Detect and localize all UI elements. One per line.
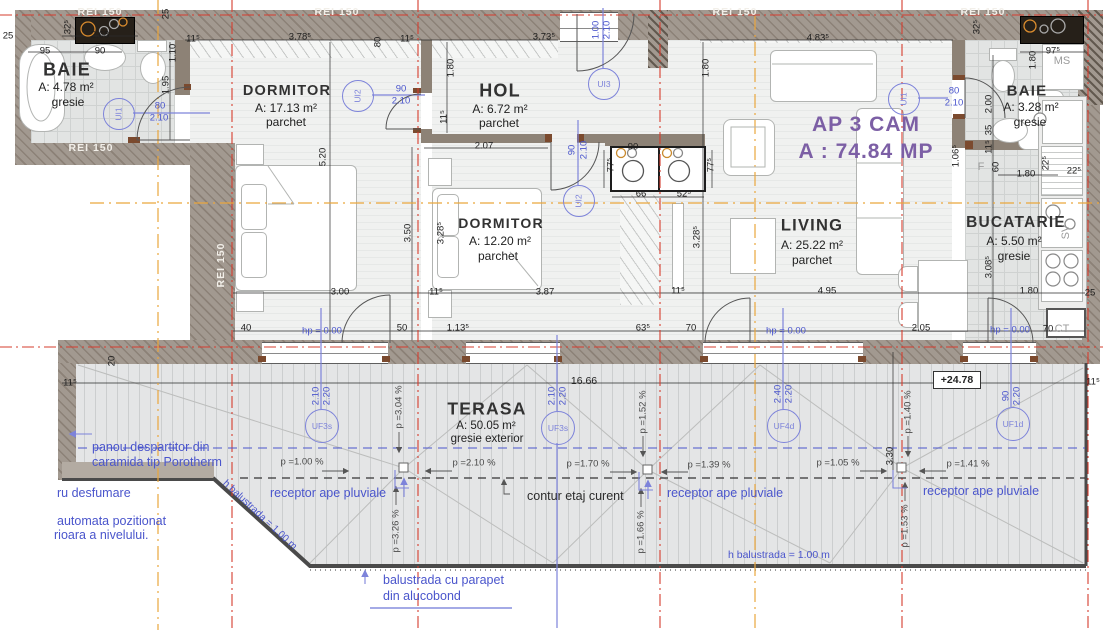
dim-label: 1.00: [591, 21, 602, 40]
annotation-panou-1: panou despartitor din: [92, 440, 209, 454]
door-sill: [953, 114, 965, 119]
annotation-desfumare-1: ru desfumare: [57, 486, 131, 500]
room-floor: gresie: [52, 95, 85, 109]
fire-rating-label: REI 150: [315, 6, 360, 18]
dim-label: 2.10: [602, 21, 613, 40]
dim-label: 3.30: [885, 447, 896, 466]
dim-label: 11⁵: [439, 110, 450, 124]
dim-label: 1.95: [161, 76, 172, 95]
sliding-panel: [672, 203, 684, 289]
dim-label: 1.13⁵: [447, 323, 469, 334]
dim-label: 2.20: [1012, 387, 1023, 406]
room-floor: gresie: [998, 249, 1031, 263]
dim-label: 63⁵: [636, 323, 651, 334]
sofa-top: [770, 50, 877, 102]
terrace-opening-kitchen: [963, 342, 1036, 364]
dim-label: 3.28⁵: [436, 222, 447, 244]
dim-label: 2.10: [547, 387, 558, 406]
wall-top: [15, 10, 1100, 40]
room-area: A: 4.78 m²: [38, 80, 93, 94]
slope-label: p =1.53 %: [900, 504, 911, 547]
door-tag: UI2: [563, 185, 595, 217]
dim-label: 90: [95, 46, 106, 57]
dim-label: 77⁵: [606, 158, 617, 173]
door-sill: [965, 141, 973, 149]
door-sill: [413, 88, 421, 93]
annotation-receptor: receptor ape pluviale: [270, 486, 386, 500]
vanity-counter: [1020, 16, 1084, 44]
stove: [1041, 250, 1083, 302]
room-name: DORMITOR: [458, 215, 544, 231]
dim-label: 95: [40, 46, 51, 57]
wall-shaft-top: [605, 134, 705, 146]
dim-label: 11⁵: [63, 378, 77, 389]
dim-label: 20: [107, 356, 118, 367]
dim-label: 3.78⁵: [289, 32, 311, 43]
slope-label: p =2.10 %: [452, 458, 495, 469]
elevation-badge: +24.78: [933, 371, 981, 389]
nightstand: [236, 144, 264, 165]
dim-label: 3.87: [536, 287, 555, 298]
wall-bath2-left-b: [952, 118, 965, 148]
annotation-panou-2: caramida tip Porotherm: [92, 455, 222, 469]
armchair: [723, 119, 775, 176]
wall-bath2-left-a: [952, 40, 965, 80]
slope-label: p =3.04 %: [394, 385, 405, 428]
dim-label: 11⁵: [429, 287, 443, 298]
window-tag: UF4d: [767, 409, 801, 443]
dim-label: 2.20: [322, 387, 333, 406]
room-name: BAIE: [1007, 83, 1048, 100]
dim-label: 2.10: [150, 113, 169, 124]
terrace-opening-bedroom1: [262, 342, 388, 364]
dim-label: 32⁵: [972, 20, 983, 35]
door-sill: [128, 137, 140, 143]
dining-table: [918, 260, 968, 332]
dim-label: 1.80: [446, 59, 457, 78]
slope-label: p =1.39 %: [687, 460, 730, 471]
window-sill: [382, 356, 390, 362]
wall-void-right: [190, 143, 235, 345]
dim-label: 1.80: [1017, 169, 1036, 180]
dim-label: 2.68: [91, 30, 110, 41]
dim-label: 80: [373, 37, 384, 48]
floor-plan: REI 150 REI 150 REI 150 REI 150 REI 150 …: [0, 0, 1103, 630]
dim-label: 50: [397, 323, 408, 334]
wall-bottom: [58, 340, 1090, 364]
room-floor: parchet: [792, 253, 832, 267]
dim-label: 4.83⁵: [807, 33, 829, 44]
room-floor: gresie exterior: [451, 433, 524, 445]
dim-label: 70: [686, 323, 697, 334]
dim-label: 3.28⁵: [692, 226, 703, 248]
dim-label: 2.00: [984, 95, 995, 114]
annotation-desfumare-3: rioara a nivelului.: [54, 528, 149, 542]
window-sill: [1030, 356, 1038, 362]
dim-label: 25: [1085, 288, 1096, 299]
dim-label: 35: [984, 125, 995, 136]
room-area: A: 17.13 m²: [255, 101, 317, 115]
window-sill: [462, 356, 470, 362]
door-sill: [545, 134, 552, 142]
dim-label: 22⁵: [1041, 156, 1052, 171]
room-area: A: 25.22 m²: [781, 238, 843, 252]
dim-label: 32⁵: [63, 20, 74, 35]
door-tag: UI3: [588, 68, 620, 100]
window-sill: [700, 356, 708, 362]
annotation-balustrada-2: din alucobond: [383, 589, 461, 603]
dim-label: 2.10: [579, 141, 590, 160]
dim-label: 16.66: [571, 375, 597, 387]
room-area: A: 3.28 m²: [1003, 100, 1058, 114]
shaft-strip: [620, 195, 660, 305]
pillar-hatch: [648, 10, 668, 68]
room-name: HOL: [479, 81, 521, 102]
terrace-opening-living: [703, 342, 863, 364]
slope-label: p =1.52 %: [638, 390, 649, 433]
room-floor: gresie: [1014, 115, 1047, 129]
room-name: LIVING: [781, 217, 843, 236]
dim-label: 2.20: [558, 387, 569, 406]
dim-label: 2.10: [311, 387, 322, 406]
dim-label: 40: [241, 323, 252, 334]
equip-label-sv: SV: [1060, 225, 1072, 240]
dim-label: 5.20: [318, 148, 329, 167]
pillow: [241, 232, 267, 278]
window-tag: UF3s: [305, 409, 339, 443]
dim-label: 90: [628, 142, 639, 153]
door-tag: UI2: [342, 80, 374, 112]
dim-label: 1.80: [1020, 286, 1039, 297]
toilet-tank: [137, 40, 167, 52]
dim-label: 3.08⁵: [984, 256, 995, 278]
dim-label: 70: [1043, 324, 1054, 335]
slope-label: p =1.41 %: [946, 459, 989, 470]
dim-label: 3.50: [403, 224, 414, 243]
dim-label: 1.80: [701, 59, 712, 78]
fire-rating-label: REI 150: [78, 6, 123, 18]
room-floor: parchet: [479, 116, 519, 130]
annotation-receptor: receptor ape pluviale: [667, 486, 783, 500]
annotation-balustrada-1: balustrada cu parapet: [383, 573, 504, 587]
dim-label: 2.40: [773, 385, 784, 404]
room-area: A: 6.72 m²: [472, 102, 527, 116]
dim-label: hp = 0.00: [302, 326, 342, 337]
nightstand: [428, 158, 452, 186]
dim-label: 11⁵: [984, 140, 995, 154]
equip-label-ct: CT: [1055, 323, 1070, 335]
nightstand: [236, 291, 264, 312]
dim-label: 1.80: [1028, 51, 1039, 70]
dim-label: 11⁵: [400, 34, 414, 45]
room-name: DORMITOR: [243, 83, 331, 99]
door-tag: UI1: [888, 83, 920, 115]
room-name: TERASA: [447, 399, 526, 420]
dim-label: 52⁵: [677, 189, 692, 200]
dim-label: 3.00: [331, 287, 350, 298]
dim-label: 4.95: [818, 286, 837, 297]
room-area: A: 12.20 m²: [469, 234, 531, 248]
dim-label: 90: [396, 84, 407, 95]
slope-label: p =1.66 %: [636, 510, 647, 553]
fire-rating-label: REI 150: [961, 6, 1006, 18]
room-name: BUCATARIE: [966, 214, 1066, 232]
dim-label: hp = 0.00: [990, 325, 1030, 336]
room-area: A: 5.50 m²: [986, 234, 1041, 248]
annotation-receptor: receptor ape pluviale: [923, 484, 1039, 498]
fire-rating-label: REI 150: [215, 243, 227, 288]
dim-label: 1.06⁵: [951, 145, 962, 167]
window-sill: [554, 356, 562, 362]
dim-label: 80: [949, 86, 960, 97]
dim-label: 22⁵: [1067, 166, 1082, 177]
slope-label: p =1.00 %: [280, 457, 323, 468]
void-outside: [15, 165, 190, 340]
annotation-desfumare-2: automata pozitionat: [57, 514, 166, 528]
dim-label: 2.10: [945, 98, 964, 109]
dim-label: hp = 0.00: [766, 326, 806, 337]
dim-label: 25: [3, 31, 14, 42]
dim-label: 2.20: [784, 385, 795, 404]
dim-label: 11⁵: [186, 34, 200, 45]
dim-label: 11⁵: [1086, 377, 1100, 388]
slope-label: p =3.26 %: [391, 509, 402, 552]
pillow: [241, 184, 267, 230]
slope-label: p =1.40 %: [903, 390, 914, 433]
dim-label: 66: [636, 189, 647, 200]
door-sill: [413, 128, 421, 133]
apartment-title: AP 3 CAM: [812, 113, 920, 137]
dim-label: 2.05: [912, 323, 931, 334]
dim-label: 3.73⁵: [533, 32, 555, 43]
door-tag: UI1: [103, 98, 135, 130]
slope-label: p =1.70 %: [566, 459, 609, 470]
dim-label: 80: [155, 101, 166, 112]
room-floor: parchet: [478, 249, 518, 263]
dim-label: 25: [161, 9, 172, 20]
annotation-contur: contur etaj curent: [527, 489, 624, 503]
shaft-box: [610, 146, 660, 192]
terrace-opening-bedroom2: [466, 342, 560, 364]
window-tag: UF1d: [996, 407, 1030, 441]
door-sill: [953, 75, 965, 80]
shaft-box: [658, 146, 706, 192]
dim-label: 60: [991, 162, 1002, 173]
dim-label: 90: [567, 145, 578, 156]
wall-bed1-right-a: [421, 40, 432, 93]
dim-label: 2.07: [475, 141, 494, 152]
room-floor: parchet: [266, 115, 306, 129]
equip-label-f: F: [978, 161, 985, 173]
dim-label: 2.10: [392, 96, 411, 107]
slope-label: p =1.05 %: [816, 458, 859, 469]
apartment-area: A : 74.84 MP: [799, 140, 934, 164]
dim-label: 77⁵: [706, 158, 717, 173]
room-area: A: 50.05 m²: [456, 420, 515, 432]
equip-label-ms: MS: [1054, 55, 1071, 67]
dim-label: 90: [1001, 391, 1012, 402]
window-sill: [258, 356, 266, 362]
annotation-hbalustrada: h balustrada = 1.00 m: [728, 549, 830, 561]
dining-chair: [898, 266, 918, 292]
dim-label: 1.10: [168, 44, 179, 63]
coffee-table: [730, 218, 776, 274]
window-tag: UF3s: [541, 411, 575, 445]
window-sill: [960, 356, 968, 362]
dim-label: 11⁵: [671, 286, 685, 297]
window-sill: [858, 356, 866, 362]
room-name: BAIE: [43, 60, 91, 81]
fire-rating-label: REI 150: [713, 6, 758, 18]
fire-rating-label: REI 150: [69, 142, 114, 154]
door-sill: [184, 84, 191, 90]
